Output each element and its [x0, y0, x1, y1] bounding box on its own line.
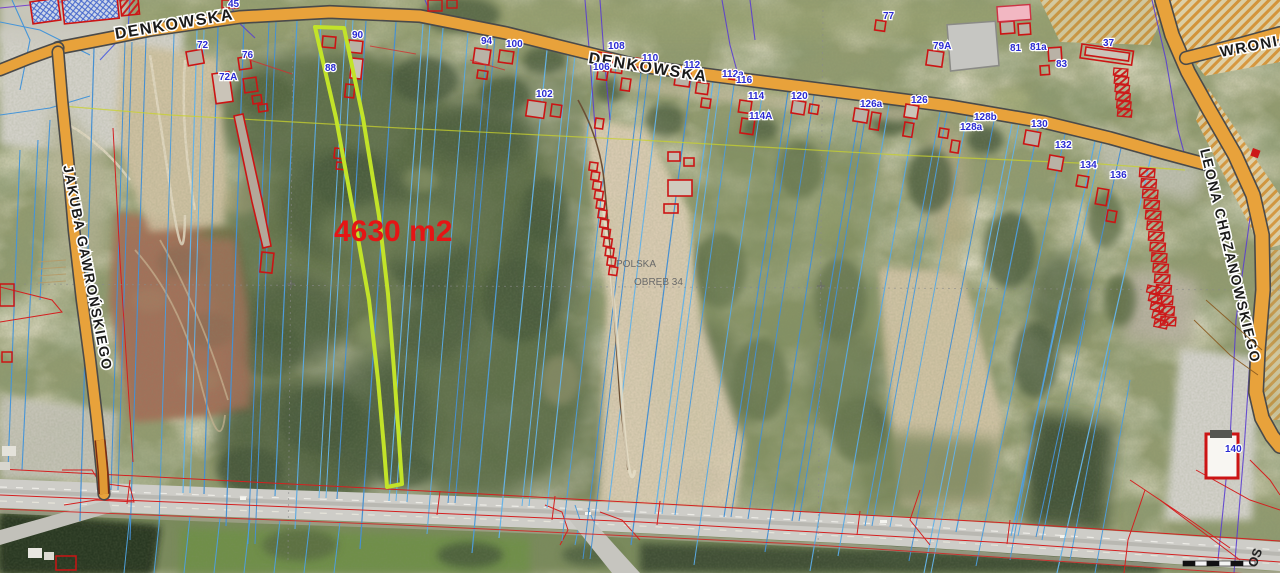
svg-text:112: 112: [684, 60, 701, 71]
svg-text:88: 88: [325, 63, 337, 74]
svg-text:108: 108: [608, 41, 625, 52]
svg-text:81: 81: [1010, 43, 1022, 54]
svg-text:79A: 79A: [933, 41, 951, 52]
svg-text:114A: 114A: [749, 111, 772, 122]
svg-text:110: 110: [642, 53, 659, 64]
svg-text:37: 37: [1103, 38, 1115, 49]
svg-text:132: 132: [1055, 140, 1072, 151]
svg-text:94: 94: [481, 36, 493, 47]
svg-text:116: 116: [736, 75, 753, 86]
svg-text:OBRĘB 34: OBRĘB 34: [634, 277, 683, 288]
svg-text:126a: 126a: [860, 99, 883, 110]
svg-text:45: 45: [228, 0, 240, 10]
svg-text:4630 m2: 4630 m2: [334, 215, 452, 248]
svg-text:136: 136: [1110, 170, 1127, 181]
svg-text:130: 130: [1031, 119, 1048, 130]
svg-text:90: 90: [352, 30, 364, 41]
svg-text:126: 126: [911, 95, 928, 106]
svg-text:81a: 81a: [1030, 42, 1047, 53]
svg-text:128a: 128a: [960, 122, 983, 133]
svg-text:114: 114: [748, 91, 765, 102]
svg-text:77: 77: [883, 11, 895, 22]
svg-text:134: 134: [1080, 160, 1097, 171]
svg-text:100: 100: [506, 39, 523, 50]
svg-text:140: 140: [1225, 444, 1242, 455]
svg-text:POLSKA: POLSKA: [616, 259, 656, 270]
svg-text:106: 106: [593, 62, 610, 73]
svg-text:120: 120: [791, 91, 808, 102]
svg-text:72: 72: [197, 40, 209, 51]
svg-text:76: 76: [242, 50, 254, 61]
svg-text:83: 83: [1056, 59, 1068, 70]
svg-text:102: 102: [536, 89, 553, 100]
svg-text:72A: 72A: [219, 72, 237, 83]
